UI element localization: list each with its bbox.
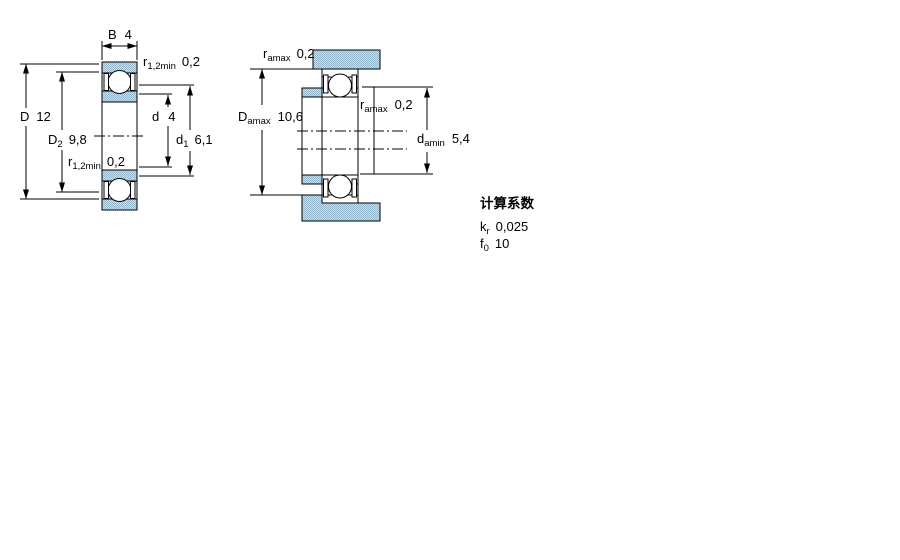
bearing-dimension-drawing-page: B4 r1,2min0,2 D12 D29,8 r1,2min0,2 d4 d1… — [0, 0, 900, 560]
factor-kr-value: 0,025 — [496, 219, 529, 234]
label-d-symbol: d — [152, 109, 159, 124]
label-D2: D29,8 — [48, 132, 87, 150]
ball-top — [108, 71, 131, 94]
label-d1-symbol: d — [176, 132, 183, 147]
label-r12min-top: r1,2min0,2 — [143, 54, 200, 72]
label-B: B4 — [108, 27, 132, 42]
label-D2-value: 9,8 — [69, 132, 87, 147]
factor-kr: kr0,025 — [480, 219, 528, 237]
label-damin-sub: amin — [424, 138, 445, 149]
shield-bottom-left — [104, 182, 109, 199]
label-Damax-sub: amax — [247, 116, 270, 127]
calculation-factors: 计算系数 kr0,025 f010 — [480, 195, 534, 254]
label-D2-symbol: D — [48, 132, 57, 147]
right-mounted-bearing-drawing — [297, 50, 407, 221]
right-ball-bottom — [329, 175, 352, 198]
label-ramax-mid: ramax0,2 — [360, 97, 413, 115]
shaft-shoulder-top — [302, 88, 322, 97]
label-damin-value: 5,4 — [452, 131, 470, 146]
dim-D-extension-lines — [20, 64, 99, 199]
label-D2-sub: 2 — [57, 139, 62, 150]
label-Damax-value: 10,6 — [278, 109, 303, 124]
right-shield-bottom-right — [352, 179, 357, 197]
label-ramax-top-value: 0,2 — [297, 46, 315, 61]
factor-f0-sub: 0 — [484, 243, 489, 254]
dim-d-extension-lines — [139, 94, 172, 167]
shield-top-right — [131, 74, 136, 91]
label-ramax-top-sub: amax — [267, 53, 290, 64]
label-d1: d16,1 — [176, 132, 213, 150]
factor-f0-value: 10 — [495, 236, 509, 251]
label-D: D12 — [20, 109, 51, 124]
left-bearing-cross-section — [94, 62, 146, 210]
label-D-symbol: D — [20, 109, 29, 124]
label-Damax: Damax10,6 — [238, 109, 303, 127]
factor-f0: f010 — [480, 236, 509, 254]
label-B-value: 4 — [125, 27, 132, 42]
dim-d1-extension-lines — [139, 85, 194, 176]
shield-top-left — [104, 74, 109, 91]
right-shield-bottom-left — [324, 179, 329, 197]
dim-B-extension-lines — [102, 41, 137, 60]
label-B-symbol: B — [108, 27, 117, 42]
factor-kr-sub: r — [487, 226, 490, 237]
label-r12min-mid: r1,2min0,2 — [68, 154, 125, 172]
housing-top-band — [313, 50, 380, 69]
shield-bottom-right — [131, 182, 136, 199]
label-r12min-mid-value: 0,2 — [107, 154, 125, 169]
right-ball-top — [329, 74, 352, 97]
label-ramax-mid-sub: amax — [364, 104, 387, 115]
label-r12min-top-value: 0,2 — [182, 54, 200, 69]
right-bearing-side-faces — [322, 97, 358, 175]
label-d1-value: 6,1 — [195, 132, 213, 147]
label-r12min-top-sub: 1,2min — [147, 61, 176, 72]
shaft-shoulder-bottom — [302, 175, 322, 184]
label-r12min-mid-sub: 1,2min — [72, 161, 101, 172]
label-d: d4 — [152, 109, 175, 124]
ball-bottom — [108, 179, 131, 202]
label-d1-sub: 1 — [183, 139, 188, 150]
label-Damax-symbol: D — [238, 109, 247, 124]
label-damin-symbol: d — [417, 131, 424, 146]
right-shield-top-right — [352, 75, 357, 93]
label-damin: damin5,4 — [417, 131, 470, 149]
technical-drawing-canvas: B4 r1,2min0,2 D12 D29,8 r1,2min0,2 d4 d1… — [0, 0, 900, 560]
label-ramax-mid-value: 0,2 — [395, 97, 413, 112]
label-d-value: 4 — [168, 109, 175, 124]
label-D-value: 12 — [36, 109, 50, 124]
label-ramax-top: ramax0,2 — [263, 46, 315, 64]
right-shield-top-left — [324, 75, 329, 93]
calculation-factors-title: 计算系数 — [480, 195, 534, 212]
